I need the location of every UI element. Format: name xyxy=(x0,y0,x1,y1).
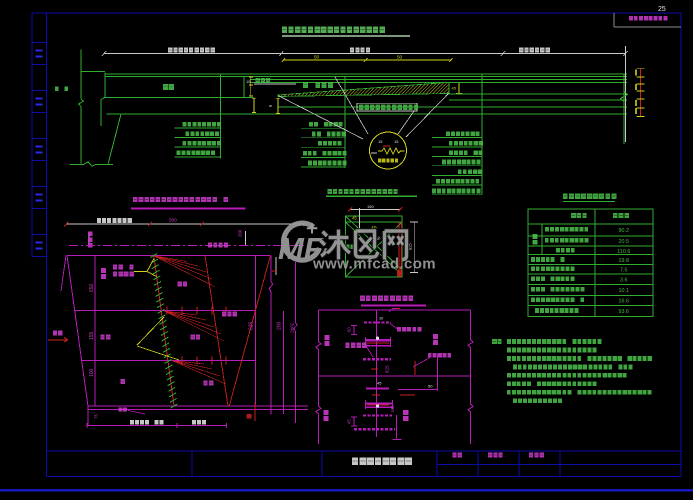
svg-text:825: 825 xyxy=(384,365,389,373)
svg-text:25: 25 xyxy=(658,6,666,13)
svg-text:45: 45 xyxy=(377,381,382,386)
svg-text:650: 650 xyxy=(89,283,95,292)
svg-text:15: 15 xyxy=(394,139,399,144)
svg-text:10: 10 xyxy=(379,317,383,321)
svg-text:200: 200 xyxy=(238,229,243,237)
svg-text:45: 45 xyxy=(452,86,457,91)
svg-text:20.5: 20.5 xyxy=(619,239,630,245)
svg-text:200: 200 xyxy=(277,321,283,330)
svg-text:45: 45 xyxy=(347,419,352,424)
svg-text:500: 500 xyxy=(169,218,177,223)
svg-text:50: 50 xyxy=(397,55,403,60)
svg-text:100: 100 xyxy=(89,368,95,377)
svg-text:90.2: 90.2 xyxy=(619,228,630,234)
svg-text:93.6: 93.6 xyxy=(619,309,630,315)
svg-text:15: 15 xyxy=(246,79,251,84)
svg-text:3.6: 3.6 xyxy=(620,277,628,283)
svg-text:2602: 2602 xyxy=(290,322,295,333)
svg-text:45: 45 xyxy=(352,216,357,221)
svg-text:110.6: 110.6 xyxy=(617,249,630,255)
svg-text:50: 50 xyxy=(314,55,320,60)
svg-text:www.mfcad.com: www.mfcad.com xyxy=(312,256,436,273)
svg-text:w: w xyxy=(269,103,272,108)
svg-text:50: 50 xyxy=(428,384,433,389)
svg-text:150: 150 xyxy=(367,204,374,209)
svg-text:M8: M8 xyxy=(390,405,395,412)
svg-text:16.6: 16.6 xyxy=(619,299,630,305)
svg-text:60: 60 xyxy=(347,327,352,332)
svg-text:10.1: 10.1 xyxy=(619,288,630,294)
svg-text:75: 75 xyxy=(94,414,99,419)
svg-text:7.5: 7.5 xyxy=(620,268,628,274)
svg-text:19.8: 19.8 xyxy=(619,258,630,264)
svg-text:15: 15 xyxy=(378,139,383,144)
svg-text:155: 155 xyxy=(89,331,95,340)
svg-text:625: 625 xyxy=(249,321,255,330)
